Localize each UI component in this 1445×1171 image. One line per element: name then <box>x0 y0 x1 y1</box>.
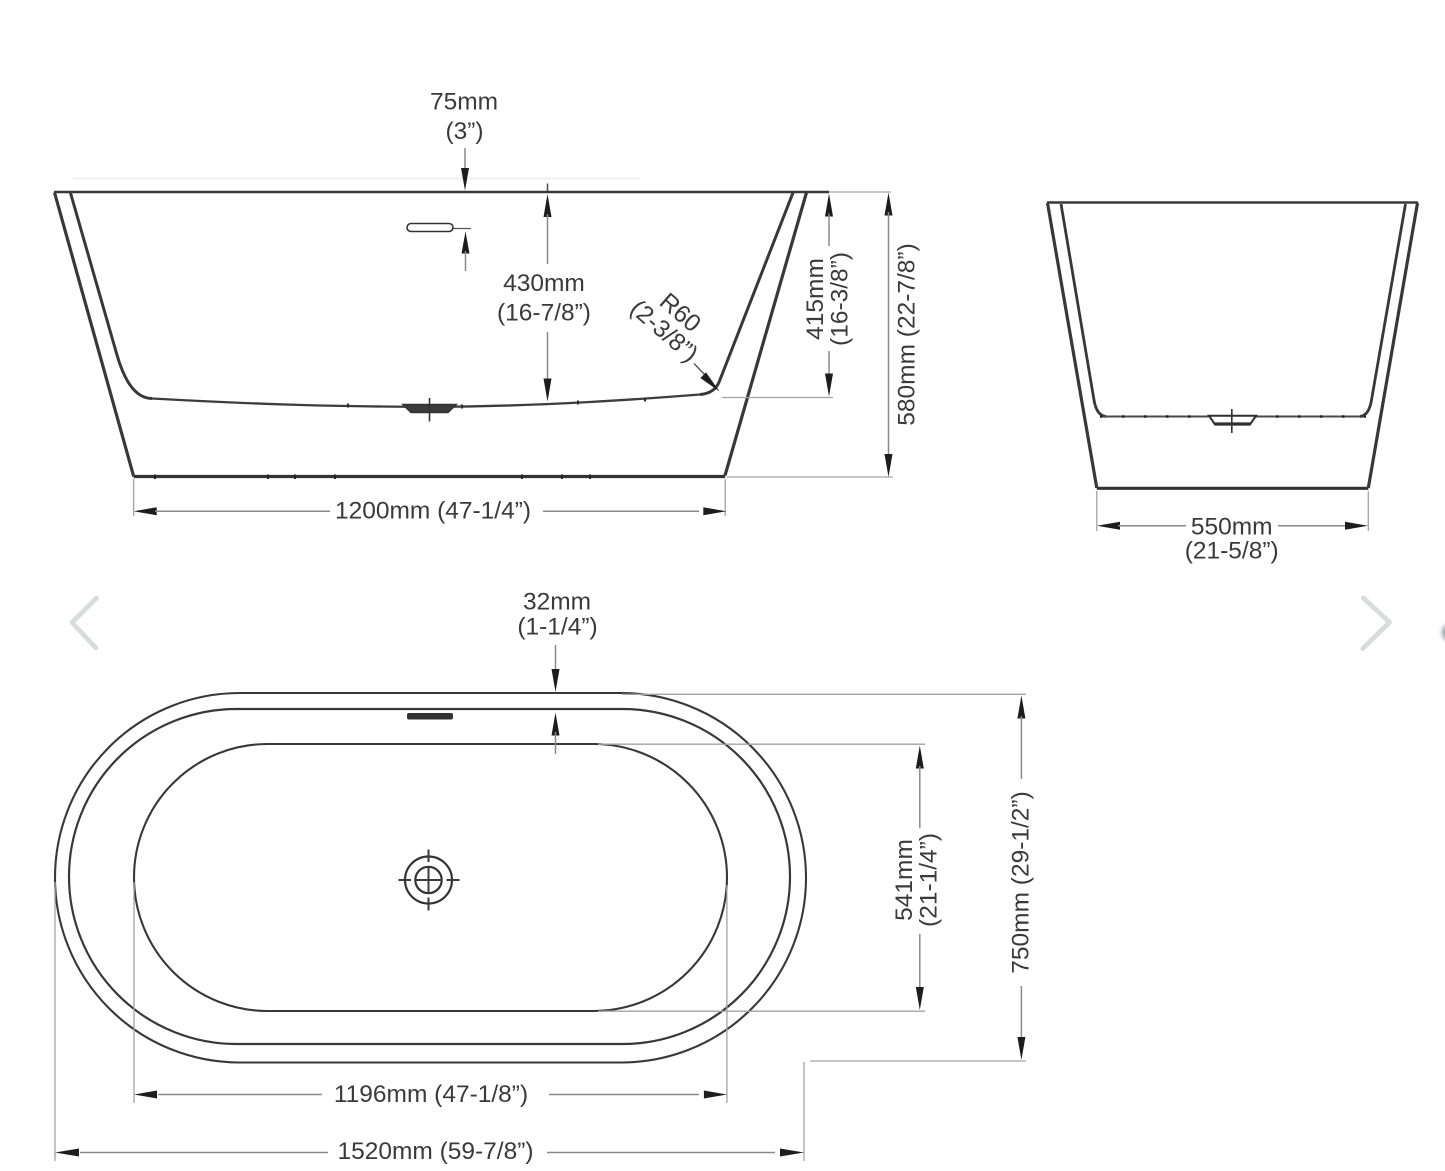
svg-text:75mm: 75mm <box>430 89 498 116</box>
svg-text:(1-1/4”): (1-1/4”) <box>517 614 597 641</box>
svg-text:(16-7/8”): (16-7/8”) <box>497 300 591 327</box>
svg-text:(21-5/8”): (21-5/8”) <box>1185 538 1279 565</box>
svg-text:415mm: 415mm <box>802 258 829 340</box>
svg-text:(16-3/8”): (16-3/8”) <box>827 252 854 346</box>
svg-text:1520mm (59-7/8”): 1520mm (59-7/8”) <box>337 1138 533 1165</box>
svg-text:541mm: 541mm <box>891 839 918 921</box>
svg-text:(21-1/4”): (21-1/4”) <box>916 833 943 927</box>
svg-text:1196mm (47-1/8”): 1196mm (47-1/8”) <box>334 1081 528 1108</box>
svg-text:(3”): (3”) <box>445 118 483 145</box>
svg-text:580mm (22-7/8”): 580mm (22-7/8”) <box>894 243 921 425</box>
svg-text:32mm: 32mm <box>523 589 591 616</box>
svg-text:430mm: 430mm <box>503 270 585 297</box>
svg-text:1200mm (47-1/4”): 1200mm (47-1/4”) <box>335 498 531 525</box>
svg-text:750mm (29-1/2”): 750mm (29-1/2”) <box>1008 791 1035 973</box>
